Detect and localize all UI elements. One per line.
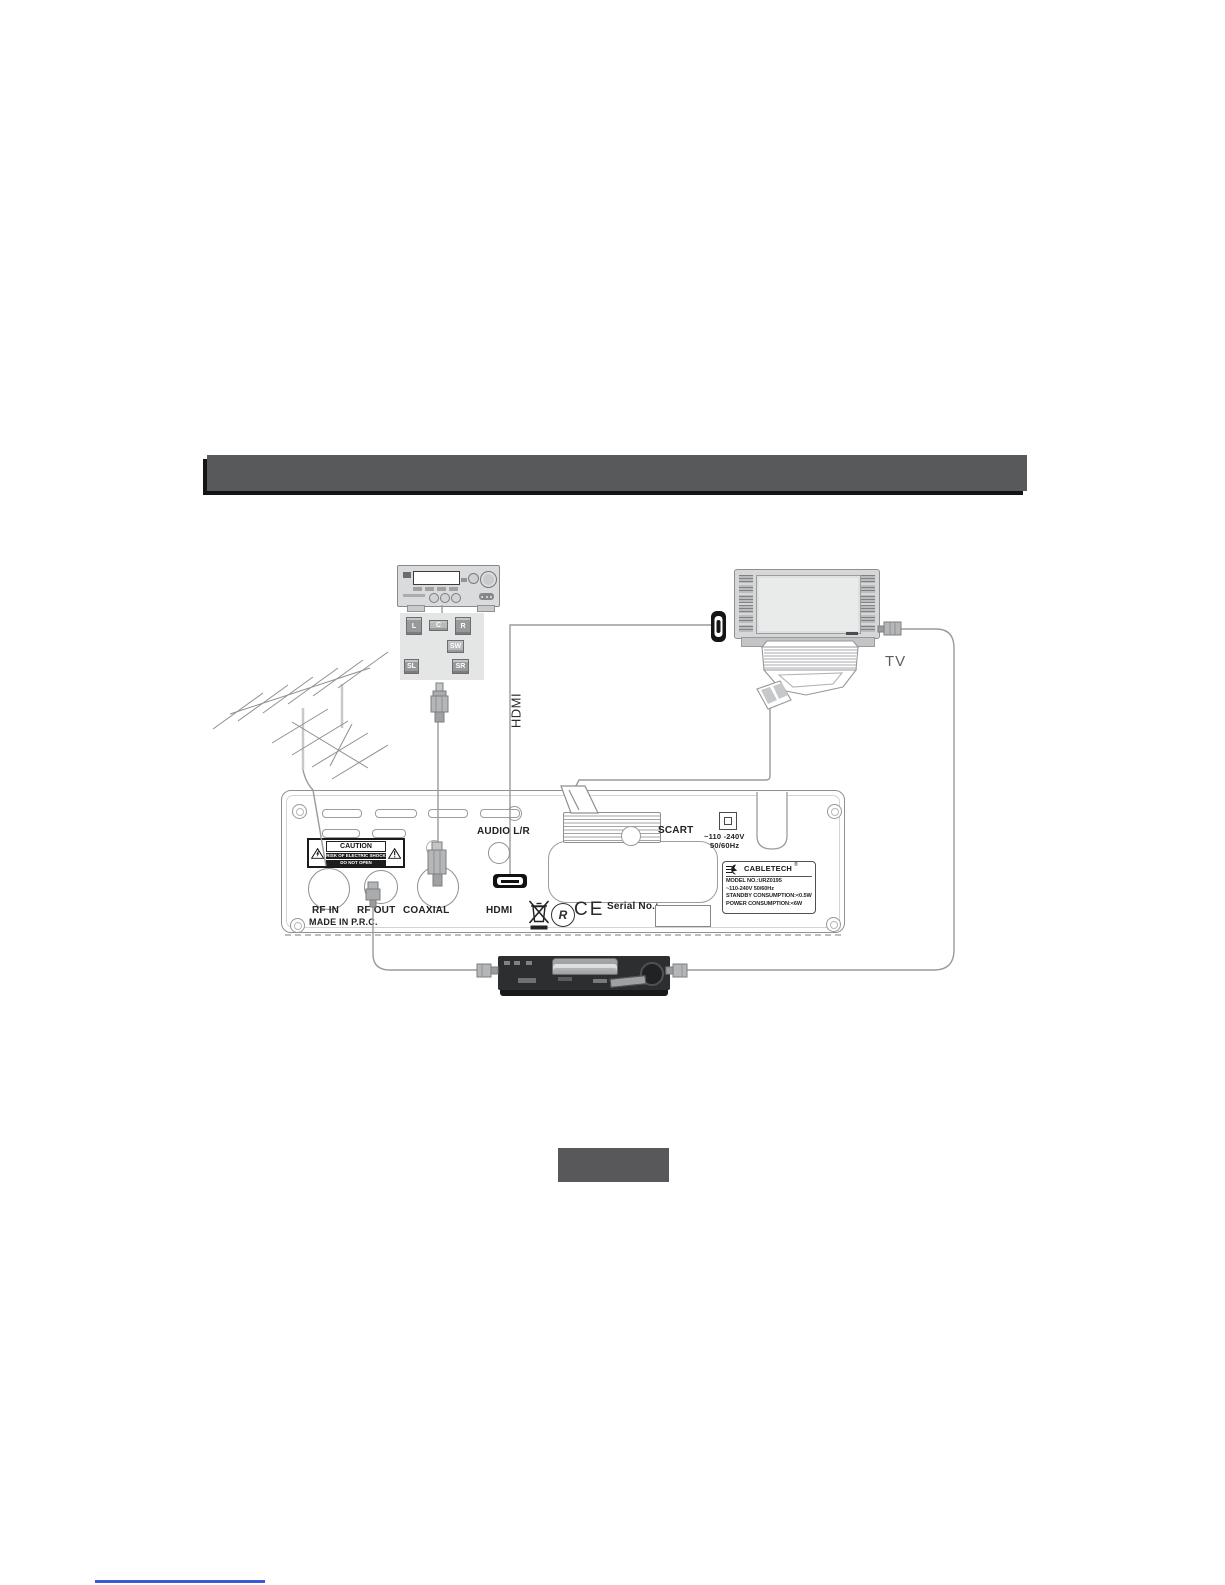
coaxial-port xyxy=(417,866,459,908)
panel-screw xyxy=(292,804,307,819)
amp-slider xyxy=(403,594,425,597)
rca-plug-free xyxy=(431,683,448,722)
r-circle-icon: R xyxy=(551,903,575,927)
amp-knob-large xyxy=(480,571,497,588)
speaker-subwoofer: SW xyxy=(447,640,464,653)
scart-plug-tv xyxy=(757,641,858,709)
rating-model: MODEL NO.:URZ0195 xyxy=(726,876,812,886)
panel-bottom-dashed-line xyxy=(285,934,841,936)
cabletech-logo-icon xyxy=(726,864,742,875)
dvd-card-slot xyxy=(610,975,647,988)
audio-port xyxy=(488,842,510,864)
vent-slot xyxy=(375,809,417,818)
rating-standby: STANDBY CONSUMPTION:<0.5W xyxy=(726,893,812,901)
power-line1: ~110 -240V xyxy=(704,832,745,841)
vent-slot xyxy=(480,809,520,818)
tv-indicator xyxy=(846,632,858,635)
caution-line1: RISK OF ELECTRIC SHOCK xyxy=(326,853,386,859)
scart-plug-panel xyxy=(563,812,661,843)
registered-mark: ® xyxy=(794,862,798,868)
dvd-button-2 xyxy=(514,961,520,965)
scart-label: SCART xyxy=(658,825,693,836)
dvd-button-3 xyxy=(526,961,532,965)
dvd-disc-tray xyxy=(552,958,618,975)
rating-voltage: ~110-240V 50/60Hz xyxy=(726,886,812,894)
scart-cable xyxy=(576,708,770,786)
television xyxy=(734,569,880,639)
serial-label: Serial No.: xyxy=(607,901,659,912)
rf-in-label: RF IN xyxy=(312,905,339,916)
dvd-player xyxy=(498,956,670,990)
dvd-base xyxy=(500,990,668,996)
dvd-slot-2 xyxy=(558,977,572,981)
amp-foot-left xyxy=(407,605,425,612)
lightning-triangle-icon xyxy=(311,844,324,863)
speaker-surround-left: SL xyxy=(404,659,419,674)
vent-slot xyxy=(428,809,468,818)
amp-jack-group xyxy=(479,593,494,600)
dvd-rf-plug-left xyxy=(477,964,498,977)
ce-mark: CE xyxy=(574,899,604,921)
amp-knob-3 xyxy=(451,593,461,603)
hdmi-cable-label: HDMI xyxy=(509,681,524,741)
rating-brand: CABLETECH xyxy=(744,864,792,873)
speaker-center: C xyxy=(429,620,448,631)
panel-screw xyxy=(827,804,842,819)
tv-hdmi-plug xyxy=(711,611,726,642)
dvd-button-1 xyxy=(504,961,510,965)
manual-page: L C R SW SL SR TV xyxy=(0,0,1225,1585)
vent-slot xyxy=(322,829,360,838)
panel-screw xyxy=(290,918,305,933)
hdmi-port-pin-bar xyxy=(501,880,519,883)
tv-caption: TV xyxy=(885,653,906,670)
tv-base xyxy=(741,637,875,647)
made-in-label: MADE IN P.R.C. xyxy=(309,917,378,927)
rf-in-port xyxy=(308,868,350,910)
rating-power: POWER CONSUMPTION:<6W xyxy=(726,901,812,909)
scart-plug-screw xyxy=(621,826,641,846)
hdmi-label: HDMI xyxy=(486,905,512,916)
section-label-box xyxy=(558,1148,669,1182)
section-header-bar xyxy=(207,455,1027,491)
caution-label: CAUTION RISK OF ELECTRIC SHOCK DO NOT OP… xyxy=(307,838,405,868)
tv-screen xyxy=(756,575,861,634)
scart-port xyxy=(548,841,718,903)
caution-line2: DO NOT OPEN xyxy=(326,860,386,866)
audio-label: AUDIO L/R xyxy=(477,826,530,837)
speaker-front-right: R xyxy=(455,617,471,635)
dvd-usb-slot xyxy=(518,978,536,983)
power-line2: 50/60Hz xyxy=(710,841,739,850)
panel-screw xyxy=(826,917,841,932)
tv-rf-plug xyxy=(878,622,901,635)
vent-slot xyxy=(322,809,362,818)
power-input-symbol xyxy=(719,812,737,830)
amp-foot-right xyxy=(477,605,495,612)
caution-title: CAUTION xyxy=(326,841,386,852)
serial-number-box xyxy=(655,905,711,927)
av-amplifier xyxy=(397,565,500,607)
rf-out-label: RF OUT xyxy=(357,905,395,916)
speaker-surround-right: SR xyxy=(452,659,469,674)
weee-icon xyxy=(526,896,552,932)
dvd-slot-3 xyxy=(593,979,607,983)
amp-small-button xyxy=(461,578,467,582)
coaxial-label: COAXIAL xyxy=(403,905,449,916)
tv-speaker-grille-left xyxy=(739,575,753,632)
speaker-front-left: L xyxy=(406,617,422,635)
amp-power-button xyxy=(403,572,411,578)
amp-button-row xyxy=(413,587,459,591)
exclamation-triangle-icon xyxy=(388,844,401,863)
speaker-layout-box: L C R SW SL SR xyxy=(400,613,484,680)
amp-knob-small xyxy=(468,573,479,584)
amp-knob-1 xyxy=(429,593,439,603)
vent-slot xyxy=(372,829,406,838)
antenna-icon xyxy=(213,652,388,779)
rating-label: CABLETECH ® MODEL NO.:URZ0195 ~110-240V … xyxy=(722,861,816,914)
tv-speaker-grille-right xyxy=(861,575,875,632)
amp-knob-2 xyxy=(440,593,450,603)
rf-out-port xyxy=(364,870,398,904)
amp-display xyxy=(413,571,460,585)
footer-link-line[interactable] xyxy=(95,1580,265,1583)
coaxial-hole xyxy=(426,840,442,856)
